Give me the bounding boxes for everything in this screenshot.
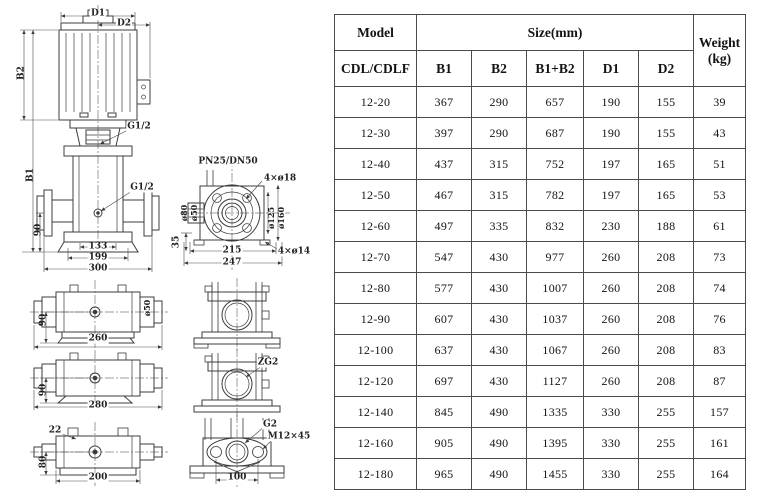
cell-d1: 330	[584, 428, 639, 459]
dim-label-d2: D2	[116, 20, 132, 29]
cell-b1: 497	[417, 211, 472, 242]
cell-d2: 165	[639, 149, 694, 180]
cell-d2: 188	[639, 211, 694, 242]
cell-model: 12-120	[335, 366, 417, 397]
cell-d2: 155	[639, 87, 694, 118]
cell-d1: 197	[584, 180, 639, 211]
cell-w: 43	[694, 118, 746, 149]
cell-b2: 290	[472, 87, 527, 118]
cell-b1: 577	[417, 273, 472, 304]
dim-label-d80: ø80	[180, 204, 188, 222]
cell-d1: 330	[584, 397, 639, 428]
cell-b2: 315	[472, 180, 527, 211]
cell-b1: 965	[417, 459, 472, 490]
cell-b2: 490	[472, 428, 527, 459]
cell-w: 83	[694, 335, 746, 366]
cell-w: 76	[694, 304, 746, 335]
cell-d1: 260	[584, 242, 639, 273]
label-flange-rating: PN25/DN50	[197, 158, 258, 167]
cell-b2: 490	[472, 459, 527, 490]
cell-model: 12-160	[335, 428, 417, 459]
callout-4xd14: 4×ø14	[277, 248, 311, 257]
cell-b1: 637	[417, 335, 472, 366]
cell-model: 12-80	[335, 273, 417, 304]
cell-b1b2: 1037	[527, 304, 584, 335]
table-row: 12-80577430100726020874	[335, 273, 746, 304]
dim-label-100: 100	[227, 474, 248, 483]
cell-d1: 190	[584, 118, 639, 149]
dim-label-300: 300	[88, 265, 109, 274]
cell-b2: 430	[472, 273, 527, 304]
header-weight-line1: Weight	[694, 35, 745, 51]
cell-w: 39	[694, 87, 746, 118]
header-model-series: CDL/CDLF	[335, 51, 417, 87]
table-row: 12-1408454901335330255157	[335, 397, 746, 428]
cell-b1: 697	[417, 366, 472, 397]
cell-b2: 490	[472, 397, 527, 428]
cell-b1: 437	[417, 149, 472, 180]
cell-b1b2: 1067	[527, 335, 584, 366]
cell-b2: 315	[472, 149, 527, 180]
dim-label-d125: ø125	[267, 206, 275, 230]
cell-b2: 430	[472, 335, 527, 366]
dim-label-d160: ø160	[277, 206, 285, 230]
cell-b1: 397	[417, 118, 472, 149]
callout-zg2: ZG2	[257, 359, 280, 368]
cell-d2: 208	[639, 304, 694, 335]
dim-label-199: 199	[88, 254, 109, 263]
cell-w: 73	[694, 242, 746, 273]
cell-d2: 165	[639, 180, 694, 211]
cell-b2: 430	[472, 242, 527, 273]
cell-d1: 230	[584, 211, 639, 242]
side-view1-dimension-lines	[34, 312, 162, 350]
header-b1: B1	[417, 51, 472, 87]
cell-d2: 255	[639, 459, 694, 490]
header-weight: Weight (kg)	[694, 15, 746, 87]
dim-label-260: 260	[88, 335, 109, 344]
dim-label-247: 247	[222, 259, 243, 268]
dim-label-d1: D1	[90, 10, 106, 19]
cell-model: 12-60	[335, 211, 417, 242]
cell-w: 157	[694, 397, 746, 428]
cell-b1: 607	[417, 304, 472, 335]
header-b1b2: B1+B2	[527, 51, 584, 87]
dim-label-35: 35	[173, 235, 182, 250]
callout-g2: G2	[262, 421, 278, 430]
dim-label-215: 215	[222, 247, 243, 256]
cell-w: 87	[694, 366, 746, 397]
cell-w: 61	[694, 211, 746, 242]
cell-b1b2: 1007	[527, 273, 584, 304]
header-d1: D1	[584, 51, 639, 87]
dim-label-b1: B1	[27, 167, 36, 183]
pump-front-elevation-lines	[37, 5, 159, 272]
dim-label-b2: B2	[18, 65, 27, 81]
cell-b2: 335	[472, 211, 527, 242]
cell-b1: 905	[417, 428, 472, 459]
table-row: 12-6049733583223018861	[335, 211, 746, 242]
callout-g12-top: G1/2	[126, 123, 152, 132]
dim-label-90-side1: 90	[40, 313, 49, 328]
cell-d1: 190	[584, 87, 639, 118]
cell-b1: 845	[417, 397, 472, 428]
dim-label-200: 200	[88, 474, 109, 483]
cell-b1b2: 687	[527, 118, 584, 149]
cell-model: 12-20	[335, 87, 417, 118]
cell-d1: 330	[584, 459, 639, 490]
dim-label-22: 22	[48, 427, 63, 436]
cell-b1: 547	[417, 242, 472, 273]
header-model: Model	[335, 15, 417, 51]
cell-b2: 290	[472, 118, 527, 149]
cell-d2: 255	[639, 428, 694, 459]
cell-model: 12-180	[335, 459, 417, 490]
dimension-table: Model Size(mm) Weight (kg) CDL/CDLF B1 B…	[334, 14, 746, 490]
cell-b1b2: 1127	[527, 366, 584, 397]
header-b2: B2	[472, 51, 527, 87]
cell-d1: 197	[584, 149, 639, 180]
callout-4xd18: 4×ø18	[263, 175, 297, 184]
front-small1-lines	[194, 278, 280, 352]
table-row: 12-4043731575219716551	[335, 149, 746, 180]
cell-model: 12-140	[335, 397, 417, 428]
cell-b1b2: 782	[527, 180, 584, 211]
cell-b1b2: 1335	[527, 397, 584, 428]
cell-d2: 208	[639, 273, 694, 304]
dim-label-133: 133	[88, 243, 109, 252]
cell-model: 12-100	[335, 335, 417, 366]
cell-d1: 260	[584, 304, 639, 335]
cell-model: 12-40	[335, 149, 417, 180]
table-row: 12-90607430103726020876	[335, 304, 746, 335]
dim-label-90-side2: 90	[40, 383, 49, 398]
cell-model: 12-70	[335, 242, 417, 273]
cell-b1b2: 832	[527, 211, 584, 242]
cell-b1b2: 1455	[527, 459, 584, 490]
cell-d1: 260	[584, 335, 639, 366]
callout-g12-mid: G1/2	[129, 184, 155, 193]
header-d2: D2	[639, 51, 694, 87]
dim-label-90-front: 90	[35, 223, 44, 238]
table-row: 12-1609054901395330255161	[335, 428, 746, 459]
cell-w: 161	[694, 428, 746, 459]
table-row: 12-120697430112726020887	[335, 366, 746, 397]
header-size-group: Size(mm)	[417, 15, 694, 51]
table-row: 12-100637430106726020883	[335, 335, 746, 366]
cell-b2: 430	[472, 304, 527, 335]
cell-b1: 467	[417, 180, 472, 211]
table-row: 12-3039729068719015543	[335, 118, 746, 149]
table-row: 12-5046731578219716553	[335, 180, 746, 211]
dim-label-d50: ø50	[190, 204, 198, 222]
cell-model: 12-30	[335, 118, 417, 149]
dim-label-d50-side1: ø50	[143, 299, 151, 317]
header-weight-line2: (kg)	[694, 51, 745, 67]
dim-label-80: 80	[40, 455, 49, 470]
cell-b1b2: 1395	[527, 428, 584, 459]
cell-w: 53	[694, 180, 746, 211]
table-body: 12-203672906571901553912-303972906871901…	[335, 87, 746, 490]
table-row: 12-1809654901455330255164	[335, 459, 746, 490]
cell-model: 12-50	[335, 180, 417, 211]
cell-w: 74	[694, 273, 746, 304]
cell-d2: 208	[639, 335, 694, 366]
table-row: 12-7054743097726020873	[335, 242, 746, 273]
cell-w: 51	[694, 149, 746, 180]
cell-b1: 367	[417, 87, 472, 118]
cell-b1b2: 977	[527, 242, 584, 273]
cell-d2: 208	[639, 366, 694, 397]
cell-d2: 255	[639, 397, 694, 428]
cell-b1b2: 657	[527, 87, 584, 118]
cell-model: 12-90	[335, 304, 417, 335]
cell-w: 164	[694, 459, 746, 490]
pump-dimension-sheet: D1 D2 B2 B1 G1/2 G1/2 90 133 199 300 PN2…	[0, 0, 757, 500]
dim-label-280: 280	[88, 402, 109, 411]
cell-d2: 208	[639, 242, 694, 273]
cell-d1: 260	[584, 366, 639, 397]
cell-b2: 430	[472, 366, 527, 397]
table-row: 12-2036729065719015539	[335, 87, 746, 118]
cell-b1b2: 752	[527, 149, 584, 180]
cell-d1: 260	[584, 273, 639, 304]
cell-d2: 155	[639, 118, 694, 149]
callout-m12x45: M12×45	[267, 433, 312, 442]
